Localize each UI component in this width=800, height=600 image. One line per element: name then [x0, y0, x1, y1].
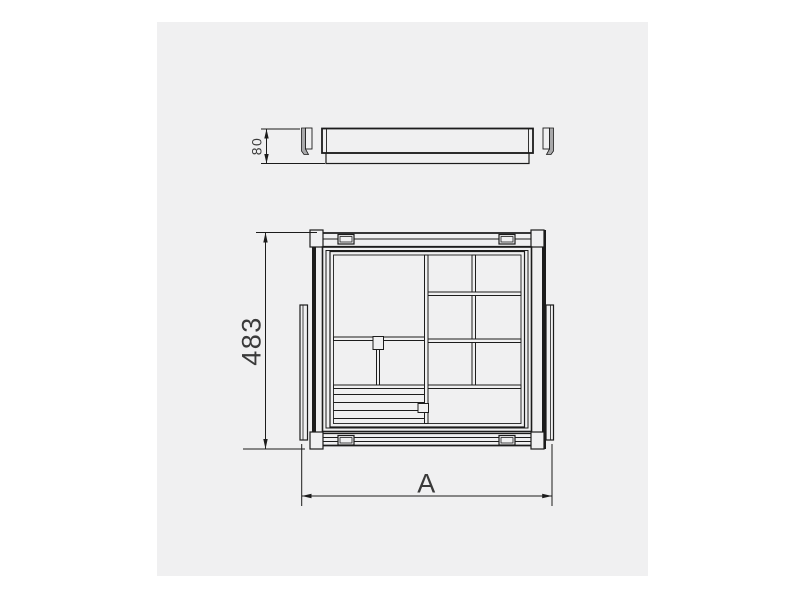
left-hook-bracket: [302, 128, 313, 155]
right-column-divider: [472, 255, 476, 389]
dim-width-label: A: [417, 468, 437, 498]
mounting-clip-bottom-right: [499, 436, 515, 446]
elevation-frame-body: [322, 129, 533, 154]
arrowhead-up: [264, 129, 268, 139]
dimension-height: 80: [248, 129, 325, 164]
mounting-clip-bottom-left: [338, 436, 354, 446]
arrowhead-left: [302, 494, 312, 498]
arrowhead-down: [263, 439, 267, 449]
right-hook-bracket: [543, 128, 554, 155]
dimension-width: A: [302, 444, 552, 506]
left-hanging-rail: [300, 305, 308, 440]
elevation-bottom-band: [326, 153, 529, 164]
right-hook-channel: [543, 128, 550, 149]
frame-right-member: [542, 230, 546, 449]
arrowhead-down: [264, 154, 268, 164]
frame-left-member: [312, 230, 316, 449]
technical-drawing: 80: [0, 0, 800, 600]
right-row-divider-1: [428, 292, 521, 296]
mounting-clip-top-right: [499, 235, 515, 245]
corner-block-bottom-right: [531, 432, 544, 449]
mounting-clip-top-left: [338, 235, 354, 245]
front-elevation-view: [302, 128, 554, 164]
arrowhead-right: [542, 494, 552, 498]
corner-block-top-right: [531, 230, 544, 247]
right-hanging-rail: [546, 305, 554, 440]
arrowhead-up: [263, 233, 267, 243]
right-row-divider-3: [428, 385, 521, 389]
ribbed-section: [334, 395, 429, 419]
right-row-divider-2: [428, 339, 521, 343]
corner-block-bottom-left: [310, 432, 323, 449]
compartment-dividers: [334, 255, 522, 424]
left-horizontal-divider-lower: [334, 385, 425, 389]
dim-depth-label: 483: [236, 316, 266, 366]
ribbed-section-tab: [418, 404, 429, 413]
plan-view: [300, 230, 554, 449]
left-hook-channel: [306, 128, 313, 149]
divider-clamp-tab: [373, 337, 384, 350]
dim-height-label: 80: [248, 137, 264, 156]
central-vertical-divider: [425, 255, 429, 424]
